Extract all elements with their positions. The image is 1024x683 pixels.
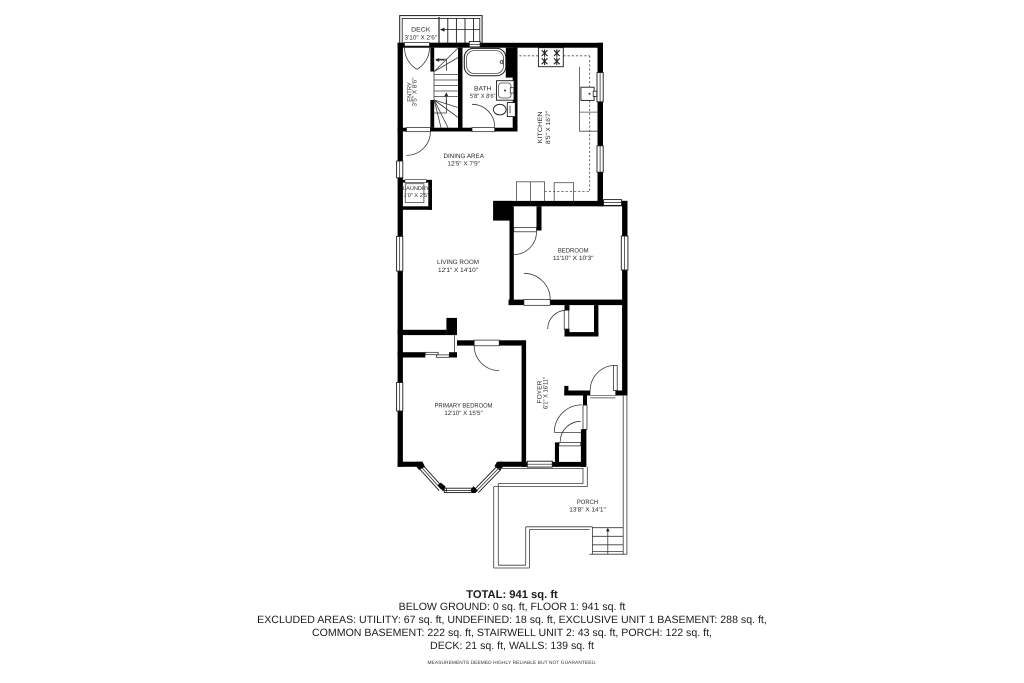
svg-text:KITCHEN: KITCHEN xyxy=(537,111,544,144)
svg-text:LIVING ROOM: LIVING ROOM xyxy=(437,259,479,266)
svg-text:11'10" X 10'3": 11'10" X 10'3" xyxy=(553,255,594,262)
svg-text:PORCH: PORCH xyxy=(577,499,599,506)
svg-text:6'1" X 16'11": 6'1" X 16'11" xyxy=(542,377,549,409)
svg-text:BATH: BATH xyxy=(474,86,492,93)
svg-text:12'10" X 15'5": 12'10" X 15'5" xyxy=(444,410,482,417)
svg-text:8'5" X 16'7": 8'5" X 16'7" xyxy=(545,111,552,144)
svg-text:1'0" X 2'5": 1'0" X 2'5" xyxy=(404,193,430,199)
svg-text:12'1" X 14'10": 12'1" X 14'10" xyxy=(438,267,478,274)
svg-text:3'5" X 8'6": 3'5" X 8'6" xyxy=(411,78,418,107)
svg-text:13'8" X 14'1": 13'8" X 14'1" xyxy=(569,506,606,513)
svg-text:DINING AREA: DINING AREA xyxy=(444,153,485,160)
svg-text:5'8" X 8'6": 5'8" X 8'6" xyxy=(470,93,496,100)
svg-text:BEDROOM: BEDROOM xyxy=(558,247,589,254)
svg-text:LAUNDRY: LAUNDRY xyxy=(403,186,430,192)
svg-text:DECK: DECK xyxy=(411,26,431,33)
svg-text:3'10" X 2'6": 3'10" X 2'6" xyxy=(405,34,438,41)
svg-text:12'5" X 7'9": 12'5" X 7'9" xyxy=(447,161,480,168)
svg-text:PRIMARY BEDROOM: PRIMARY BEDROOM xyxy=(435,403,493,410)
